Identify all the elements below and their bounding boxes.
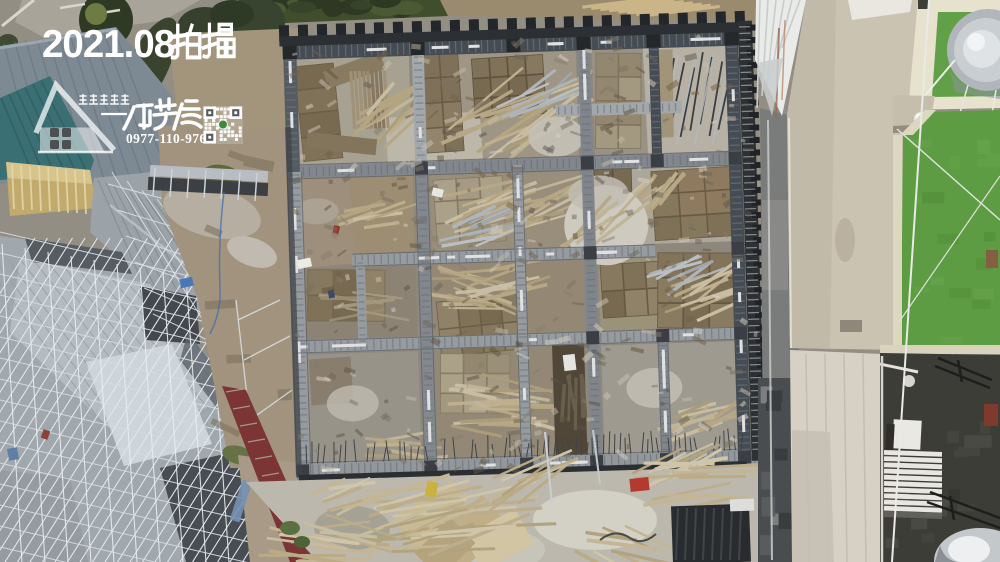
svg-text:0977-110-976: 0977-110-976 [126,131,207,146]
svg-text:2021.08: 2021.08 [42,23,175,66]
